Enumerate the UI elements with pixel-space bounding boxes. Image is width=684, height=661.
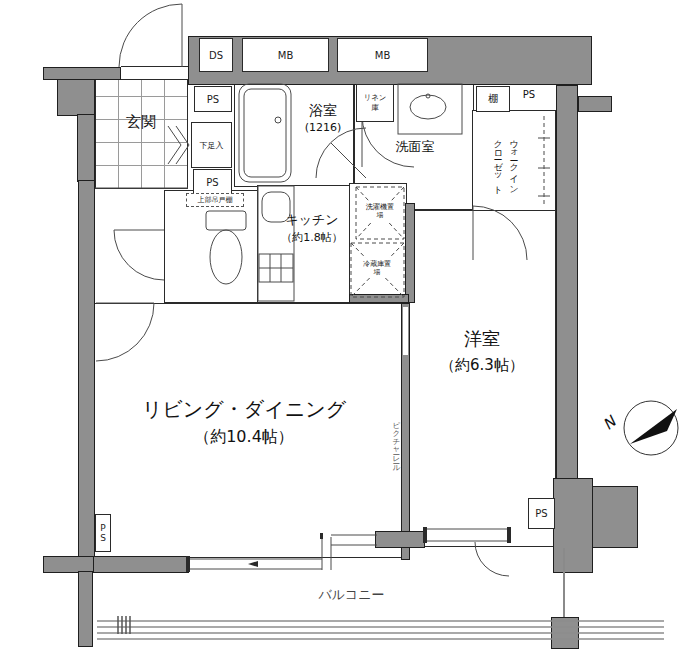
door-arc bbox=[475, 542, 509, 576]
kitchen-text: キッチン bbox=[285, 213, 338, 228]
wall-segment bbox=[405, 203, 415, 303]
balcony-text: バルコニー bbox=[318, 588, 384, 603]
wall-segment bbox=[93, 556, 189, 573]
duct-mb-label: MB bbox=[375, 50, 391, 61]
wic-text: ウォークインクローゼット bbox=[490, 130, 522, 194]
western-size-text: （約6.3帖） bbox=[440, 357, 524, 374]
duct-ds: DS bbox=[199, 38, 233, 72]
duct-mb-right: MB bbox=[337, 38, 428, 72]
bathroom-size-text: (1216) bbox=[305, 122, 342, 135]
duct-mb-label: MB bbox=[278, 50, 294, 61]
ps-label: PS bbox=[206, 177, 218, 188]
living-size-text: （約10.4帖） bbox=[194, 428, 294, 446]
label-kitchen-size: （約1.8帖） bbox=[264, 230, 360, 246]
kitchen-size-text: （約1.8帖） bbox=[281, 232, 343, 245]
floor-plan: DS MB MB PS PS 下足入 リネン庫 棚 PS PS PS 上部吊戸棚… bbox=[0, 0, 684, 661]
linen-closet: リネン庫 bbox=[356, 84, 394, 122]
slide-arrow bbox=[248, 561, 258, 567]
wall-segment bbox=[553, 478, 593, 573]
wall-segment bbox=[349, 294, 409, 303]
wall-segment bbox=[578, 96, 612, 112]
genkan-text: 玄関 bbox=[126, 114, 156, 131]
wall-segment bbox=[78, 571, 93, 647]
shoe-cabinet: 下足入 bbox=[191, 122, 232, 168]
room-genkan bbox=[95, 79, 188, 189]
label-fridge-space: 冷蔵庫置場 bbox=[363, 258, 391, 278]
wall-segment bbox=[592, 486, 638, 548]
sliding-door bbox=[403, 307, 408, 355]
label-living: リビング・ダイニング bbox=[104, 396, 384, 422]
label-washer-space: 洗濯機置場 bbox=[366, 201, 394, 221]
door-arc bbox=[119, 4, 182, 67]
label-picture-rail: ピクチャーレール bbox=[389, 396, 402, 488]
shelf: 棚 bbox=[476, 86, 510, 112]
wall-segment bbox=[77, 114, 95, 182]
door-arc bbox=[114, 230, 164, 280]
wall-segment bbox=[78, 180, 95, 560]
picture-rail-text: ピクチャーレール bbox=[391, 416, 400, 467]
linen-closet-label: リネン庫 bbox=[363, 93, 388, 113]
pipe-shaft-top: PS bbox=[194, 86, 232, 112]
ps-label: PS bbox=[207, 94, 219, 105]
upper-cabinet: 上部吊戸棚 bbox=[186, 193, 244, 207]
label-bathroom-size: (1216) bbox=[291, 120, 355, 136]
north-text: N bbox=[600, 414, 620, 434]
shoe-cabinet-label: 下足入 bbox=[200, 140, 224, 151]
ps-label: PS bbox=[523, 89, 535, 101]
wall-segment-right bbox=[556, 85, 578, 480]
pipe-shaft-wic: PS bbox=[514, 87, 544, 103]
label-kitchen: キッチン bbox=[270, 211, 354, 229]
living-text: リビング・ダイニング bbox=[142, 398, 346, 421]
label-western: 洋室 bbox=[417, 326, 547, 352]
duct-mb-left: MB bbox=[242, 38, 329, 72]
label-living-size: （約10.4帖） bbox=[104, 426, 384, 448]
label-washroom: 洗面室 bbox=[378, 138, 452, 156]
upper-cabinet-label: 上部吊戸棚 bbox=[198, 195, 233, 205]
compass-north-label: N bbox=[593, 407, 627, 441]
washroom-text: 洗面室 bbox=[396, 140, 435, 155]
shelf-label: 棚 bbox=[488, 92, 498, 106]
pipe-shaft-mid: PS bbox=[193, 169, 232, 196]
entrance-threshold bbox=[121, 66, 188, 80]
pipe-shaft-bottom-left: PS bbox=[95, 514, 111, 552]
label-balcony: バルコニー bbox=[294, 586, 409, 604]
fridge-space-text: 冷蔵庫置場 bbox=[363, 260, 391, 276]
bathroom-text: 浴室 bbox=[309, 102, 337, 118]
pipe-shaft-bottom-right: PS bbox=[528, 498, 555, 529]
ps-label: PS bbox=[98, 523, 108, 543]
duct-ds-label: DS bbox=[209, 50, 223, 61]
compass-icon bbox=[624, 401, 678, 455]
wall-segment bbox=[57, 79, 95, 116]
label-western-size: （約6.3帖） bbox=[412, 356, 552, 376]
label-genkan: 玄関 bbox=[108, 112, 174, 134]
label-wic: ウォークインクローゼット bbox=[488, 118, 524, 206]
ps-label: PS bbox=[535, 508, 547, 519]
washer-space-text: 洗濯機置場 bbox=[366, 203, 394, 219]
label-bathroom: 浴室 bbox=[294, 101, 352, 119]
western-text: 洋室 bbox=[464, 329, 500, 350]
balcony-partition bbox=[551, 617, 579, 649]
wall-segment bbox=[375, 531, 425, 548]
room-western bbox=[403, 210, 556, 547]
